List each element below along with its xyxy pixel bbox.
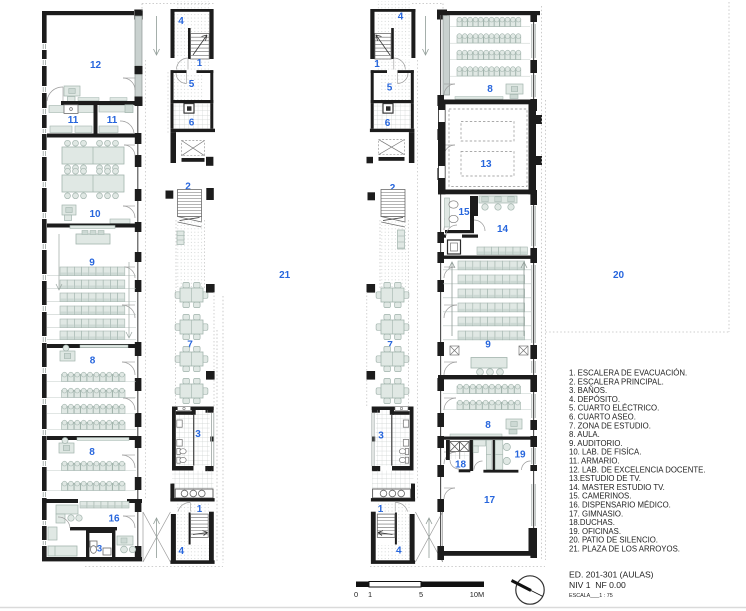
- svg-text:10. LAB. DE FISÍCA.: 10. LAB. DE FISÍCA.: [569, 448, 641, 457]
- svg-text:5: 5: [419, 590, 423, 599]
- svg-text:4: 4: [179, 546, 185, 557]
- svg-text:11. ARMARIO.: 11. ARMARIO.: [569, 457, 620, 466]
- svg-text:3. BAÑOS.: 3. BAÑOS.: [569, 386, 607, 395]
- svg-text:NIV 1 NF 0.00: NIV 1 NF 0.00: [569, 580, 626, 590]
- svg-text:0: 0: [354, 590, 358, 599]
- svg-text:3: 3: [378, 431, 384, 442]
- svg-text:8. AULA.: 8. AULA.: [569, 430, 600, 439]
- svg-text:19: 19: [514, 450, 526, 461]
- svg-text:7. ZONA DE ESTUDIO.: 7. ZONA DE ESTUDIO.: [569, 421, 651, 430]
- svg-text:15: 15: [458, 207, 470, 218]
- svg-text:8: 8: [485, 420, 491, 431]
- svg-text:11: 11: [68, 115, 79, 126]
- svg-text:20: 20: [613, 270, 625, 281]
- svg-text:16. DISPENSARIO MÉDICO.: 16. DISPENSARIO MÉDICO.: [569, 501, 671, 510]
- svg-text:5. CUARTO ELÉCTRICO.: 5. CUARTO ELÉCTRICO.: [569, 404, 659, 413]
- svg-text:4: 4: [396, 546, 402, 557]
- svg-text:1. ESCALERA DE EVACUACIÓN.: 1. ESCALERA DE EVACUACIÓN.: [569, 369, 687, 378]
- svg-text:13: 13: [480, 159, 492, 170]
- svg-text:5: 5: [189, 79, 195, 90]
- svg-text:4: 4: [178, 16, 184, 27]
- svg-text:10M: 10M: [470, 590, 484, 599]
- svg-text:21: 21: [279, 270, 291, 281]
- svg-text:8: 8: [89, 447, 95, 458]
- svg-text:ED. 201-301 (AULAS): ED. 201-301 (AULAS): [569, 570, 654, 580]
- svg-text:21. PLAZA DE LOS ARROYOS.: 21. PLAZA DE LOS ARROYOS.: [569, 545, 680, 554]
- svg-text:14: 14: [497, 224, 509, 235]
- svg-text:5: 5: [387, 83, 393, 94]
- svg-text:6: 6: [385, 118, 391, 129]
- svg-text:12: 12: [90, 60, 102, 71]
- svg-text:9: 9: [485, 340, 491, 351]
- svg-text:10: 10: [89, 209, 101, 220]
- svg-text:16: 16: [108, 514, 120, 525]
- svg-text:9. AUDITORIO.: 9. AUDITORIO.: [569, 439, 623, 448]
- svg-text:8: 8: [90, 356, 96, 367]
- svg-text:15. CAMERINOS.: 15. CAMERINOS.: [569, 492, 631, 501]
- svg-text:ESCALA___1 : 75: ESCALA___1 : 75: [569, 593, 613, 599]
- svg-text:12. LAB. DE EXCELENCIA DOCENTE: 12. LAB. DE EXCELENCIA DOCENTE.: [569, 465, 706, 474]
- svg-text:13.ESTUDIO DE TV.: 13.ESTUDIO DE TV.: [569, 474, 641, 483]
- svg-text:8: 8: [487, 84, 493, 95]
- svg-text:3: 3: [97, 544, 102, 555]
- svg-text:11: 11: [107, 115, 118, 126]
- svg-text:4. DEPÓSITO.: 4. DEPÓSITO.: [569, 395, 620, 404]
- svg-text:19. OFICINAS.: 19. OFICINAS.: [569, 527, 621, 536]
- svg-text:3: 3: [195, 429, 201, 440]
- svg-text:14. MASTER ESTUDIO TV.: 14. MASTER ESTUDIO TV.: [569, 483, 665, 492]
- svg-text:17. GIMNASIO.: 17. GIMNASIO.: [569, 509, 623, 518]
- svg-text:17: 17: [484, 495, 496, 506]
- svg-text:6. CUARTO ASEO.: 6. CUARTO ASEO.: [569, 413, 636, 422]
- svg-text:2. ESCALERA PRINCIPAL.: 2. ESCALERA PRINCIPAL.: [569, 377, 664, 386]
- svg-text:1: 1: [368, 590, 372, 599]
- svg-text:6: 6: [189, 118, 195, 129]
- svg-text:18.DUCHAS.: 18.DUCHAS.: [569, 518, 615, 527]
- svg-text:20. PATIO DE SILENCIO.: 20. PATIO DE SILENCIO.: [569, 536, 658, 545]
- svg-text:4: 4: [398, 12, 404, 23]
